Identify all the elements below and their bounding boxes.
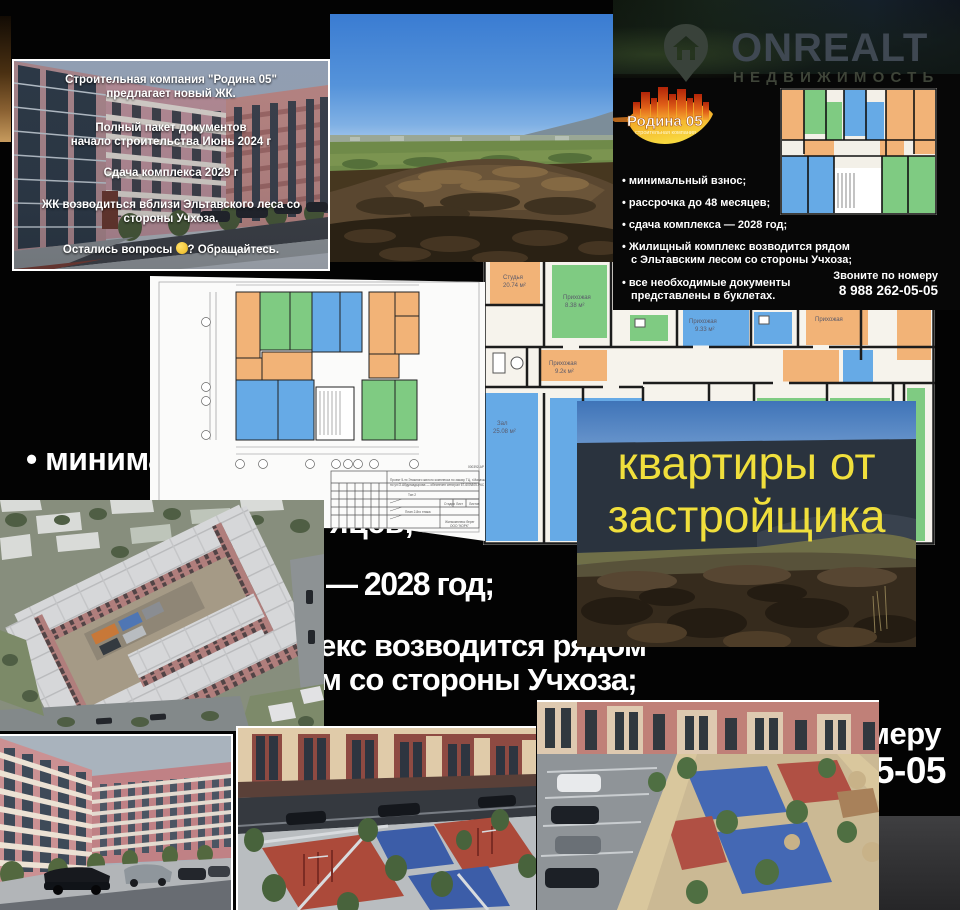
svg-text:Прихожая: Прихожая — [563, 295, 591, 301]
svg-text:25.08 м²: 25.08 м² — [493, 429, 516, 435]
svg-text:Проект 5-ти Этажного жилого к: Проект 5-ти Этажного жилого комплекса по… — [390, 478, 485, 482]
svg-text:Студья: Студья — [503, 275, 523, 281]
svg-text:Листов: Листов — [469, 502, 480, 506]
svg-text:Стадия: Стадия — [444, 502, 455, 506]
svg-text:8.38 м²: 8.38 м² — [565, 303, 584, 309]
svg-text:План 2-8го этажа: План 2-8го этажа — [405, 510, 431, 514]
svg-text:Тип 2: Тип 2 — [408, 493, 416, 497]
svg-text:ONREALT: ONREALT — [731, 26, 928, 70]
svg-text:9.33 м²: 9.33 м² — [695, 327, 714, 333]
svg-text:20.74 м²: 20.74 м² — [503, 283, 526, 289]
svg-text:9.2к м²: 9.2к м² — [555, 369, 574, 375]
svg-text:Родина 05: Родина 05 — [627, 113, 703, 130]
svg-text:000392-АР: 000392-АР — [468, 465, 484, 469]
svg-text:Прихожая: Прихожая — [689, 319, 717, 325]
svg-text:ООО "КОРК": ООО "КОРК" — [450, 524, 469, 528]
svg-text:НЕДВИЖИМОСТЬ: НЕДВИЖИМОСТЬ — [733, 69, 939, 86]
svg-text:Лист: Лист — [456, 502, 463, 506]
svg-text:Зал: Зал — [497, 421, 508, 427]
svg-text:Прихожая: Прихожая — [815, 317, 843, 323]
svg-text:по ул.О.Абдулкадырова — обеспе: по ул.О.Абдулкадырова — обеспечен сетигр… — [390, 483, 485, 487]
svg-text:Прихожая: Прихожая — [549, 361, 577, 367]
svg-text:строительная компания: строительная компания — [635, 130, 696, 136]
